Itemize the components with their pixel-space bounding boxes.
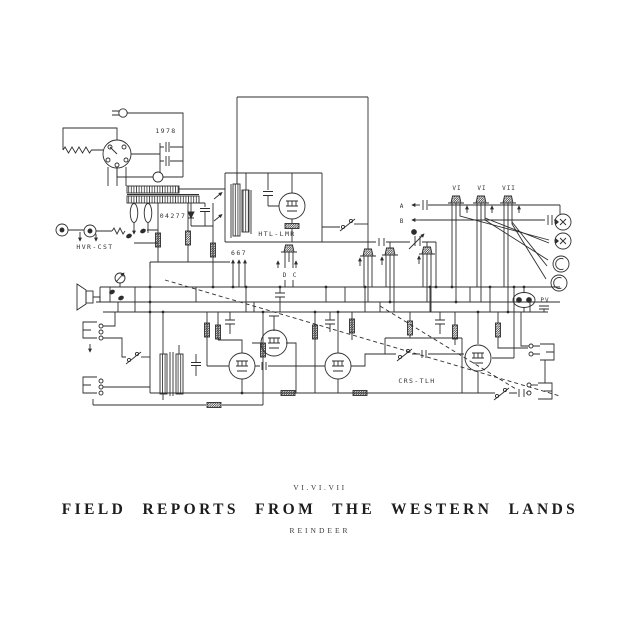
- resistor-symbol: [496, 323, 501, 337]
- resistor-symbol: [408, 321, 413, 335]
- resistor-symbol: [281, 391, 295, 396]
- tube-v2-label: VI: [477, 185, 486, 192]
- tube-v3-label: VII: [502, 185, 516, 192]
- node-a-label: A: [400, 203, 405, 210]
- resistor-symbol: [186, 231, 191, 245]
- resistor-symbol: [261, 343, 266, 357]
- vacuum-tube: [279, 193, 305, 219]
- tube-v1-label: VI: [452, 185, 461, 192]
- vacuum-tube: [325, 353, 351, 379]
- module-htl-lmr-label: HTL-LMR: [258, 230, 295, 238]
- jack-connector: [551, 275, 567, 291]
- schematic-canvas: 1978 04277 HTL-LMR HVR-CST CRS-TLH 667 D…: [0, 0, 640, 640]
- album-cover: 1978 04277 HTL-LMR HVR-CST CRS-TLH 667 D…: [0, 0, 640, 640]
- module-hvr-cst-label: HVR-CST: [76, 243, 113, 251]
- resistor-symbol: [353, 391, 367, 396]
- artist-name: REINDEER: [289, 526, 350, 535]
- resistor-symbol: [216, 325, 221, 339]
- album-title: FIELD REPORTS FROM THE WESTERN LANDS: [62, 501, 578, 518]
- value-667-label: 667: [231, 249, 247, 257]
- year-label: 1978: [155, 127, 176, 135]
- vacuum-tube: [229, 353, 255, 379]
- catalog-number: VI.VI.VII: [293, 483, 346, 492]
- resistor-symbol: [453, 325, 458, 339]
- pin-d-label: D: [283, 272, 288, 279]
- jack-connector: [555, 214, 571, 230]
- lamp-symbol: [153, 172, 163, 182]
- node-b-label: B: [400, 218, 405, 225]
- resistor-symbol: [207, 403, 221, 408]
- pv-connector-label: PV: [540, 297, 549, 304]
- capacitor-symbol: [130, 204, 138, 223]
- module-crs-tlh-label: CRS-TLH: [398, 377, 435, 385]
- resistor-symbol: [285, 224, 299, 229]
- resistor-symbol: [211, 243, 216, 257]
- jack-connector: [553, 256, 569, 272]
- resistor-symbol: [156, 233, 161, 247]
- pin-c-label: C: [293, 272, 298, 279]
- background: [0, 0, 640, 640]
- part-number-label: 04277: [160, 212, 187, 220]
- resistor-symbol: [205, 323, 210, 337]
- capacitor-symbol: [144, 204, 152, 223]
- vacuum-tube: [465, 345, 491, 371]
- jack-connector: [555, 233, 571, 249]
